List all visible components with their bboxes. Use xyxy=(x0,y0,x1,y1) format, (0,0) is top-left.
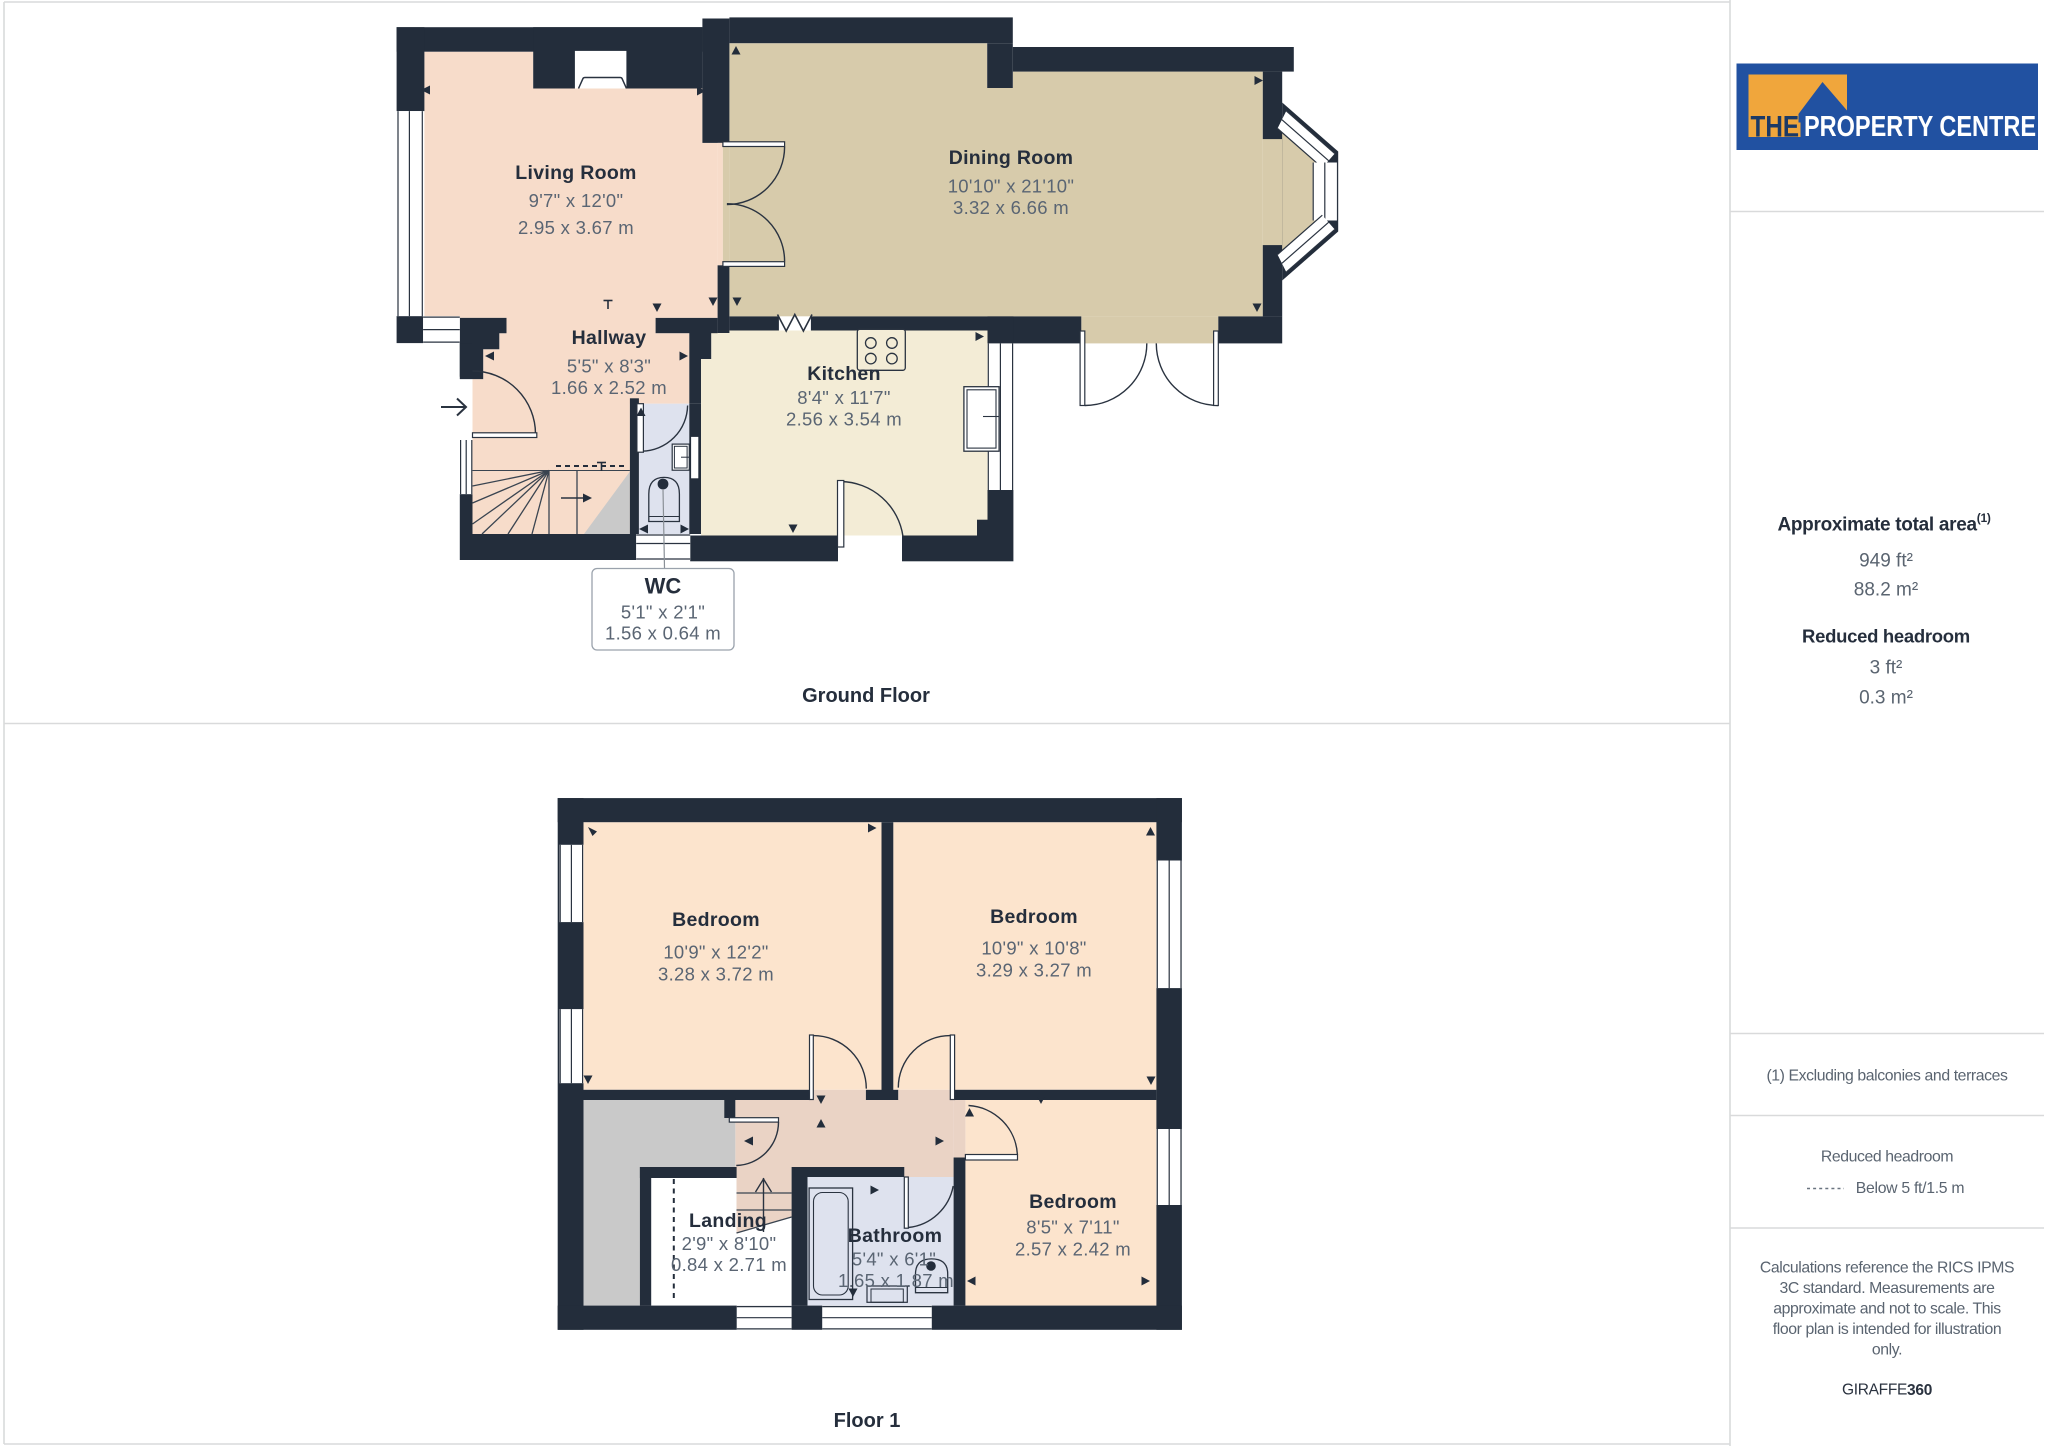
svg-text:5'1" x 2'1": 5'1" x 2'1" xyxy=(621,602,705,623)
svg-text:5'4" x 6'1": 5'4" x 6'1" xyxy=(852,1249,936,1270)
svg-text:Reduced headroom: Reduced headroom xyxy=(1821,1149,1954,1166)
svg-text:Landing: Landing xyxy=(689,1210,767,1232)
svg-text:3.29 x 3.27 m: 3.29 x 3.27 m xyxy=(976,960,1092,981)
svg-text:2.95 x 3.67 m: 2.95 x 3.67 m xyxy=(518,217,634,238)
svg-text:3.32 x 6.66 m: 3.32 x 6.66 m xyxy=(953,197,1069,218)
svg-text:Bedroom: Bedroom xyxy=(1029,1191,1117,1213)
svg-text:10'10" x 21'10": 10'10" x 21'10" xyxy=(948,176,1075,197)
svg-text:9'7" x 12'0": 9'7" x 12'0" xyxy=(529,190,624,211)
svg-text:THE: THE xyxy=(1751,111,1800,144)
svg-text:10'9" x 12'2": 10'9" x 12'2" xyxy=(663,942,768,963)
svg-text:Calculations reference the RIC: Calculations reference the RICS IPMS xyxy=(1760,1260,2014,1277)
svg-text:0.84 x 2.71 m: 0.84 x 2.71 m xyxy=(671,1254,787,1275)
svg-text:1.65 x 1.87 m: 1.65 x 1.87 m xyxy=(838,1270,954,1291)
svg-text:Bedroom: Bedroom xyxy=(672,909,760,931)
svg-text:8'5" x 7'11": 8'5" x 7'11" xyxy=(1026,1217,1119,1238)
svg-text:PROPERTY CENTRE: PROPERTY CENTRE xyxy=(1804,111,2036,143)
svg-text:floor plan is intended for ill: floor plan is intended for illustration xyxy=(1773,1321,2002,1338)
svg-text:88.2 m²: 88.2 m² xyxy=(1854,580,1918,601)
svg-text:(1) Excluding balconies and te: (1) Excluding balconies and terraces xyxy=(1766,1068,2008,1085)
svg-text:Below 5 ft/1.5 m: Below 5 ft/1.5 m xyxy=(1856,1180,1965,1197)
svg-text:1.56 x 0.64 m: 1.56 x 0.64 m xyxy=(605,623,721,644)
svg-text:only.: only. xyxy=(1872,1342,1902,1359)
svg-text:3 ft²: 3 ft² xyxy=(1870,658,1903,679)
svg-text:Bathroom: Bathroom xyxy=(848,1225,942,1247)
svg-text:949 ft²: 949 ft² xyxy=(1859,551,1913,572)
svg-text:WC: WC xyxy=(645,574,682,599)
svg-text:approximate and not to scale.: approximate and not to scale. This xyxy=(1773,1301,2001,1318)
svg-text:Living Room: Living Room xyxy=(515,162,636,184)
svg-text:Hallway: Hallway xyxy=(572,327,647,349)
svg-text:3C standard. Measurements are: 3C standard. Measurements are xyxy=(1780,1280,1996,1297)
svg-text:2.56 x 3.54 m: 2.56 x 3.54 m xyxy=(786,409,902,430)
svg-text:0.3 m²: 0.3 m² xyxy=(1859,688,1913,709)
svg-text:Bedroom: Bedroom xyxy=(990,906,1078,928)
svg-text:Kitchen: Kitchen xyxy=(807,363,881,385)
svg-text:3.28 x 3.72 m: 3.28 x 3.72 m xyxy=(658,964,774,985)
svg-text:Dining Room: Dining Room xyxy=(949,147,1074,169)
svg-text:2'9" x 8'10": 2'9" x 8'10" xyxy=(682,1233,777,1254)
svg-text:10'9" x 10'8": 10'9" x 10'8" xyxy=(981,938,1086,959)
svg-text:GIRAFFE360: GIRAFFE360 xyxy=(1842,1382,1932,1399)
svg-text:2.57 x 2.42 m: 2.57 x 2.42 m xyxy=(1015,1239,1131,1260)
svg-text:Reduced headroom: Reduced headroom xyxy=(1802,626,1970,647)
svg-text:Floor 1: Floor 1 xyxy=(834,1410,901,1432)
svg-text:1.66 x 2.52 m: 1.66 x 2.52 m xyxy=(551,377,667,398)
svg-text:Approximate total area(1): Approximate total area(1) xyxy=(1777,511,1990,536)
svg-text:5'5" x 8'3": 5'5" x 8'3" xyxy=(567,356,651,377)
svg-text:8'4" x 11'7": 8'4" x 11'7" xyxy=(797,387,890,408)
svg-text:Ground Floor: Ground Floor xyxy=(802,685,930,707)
